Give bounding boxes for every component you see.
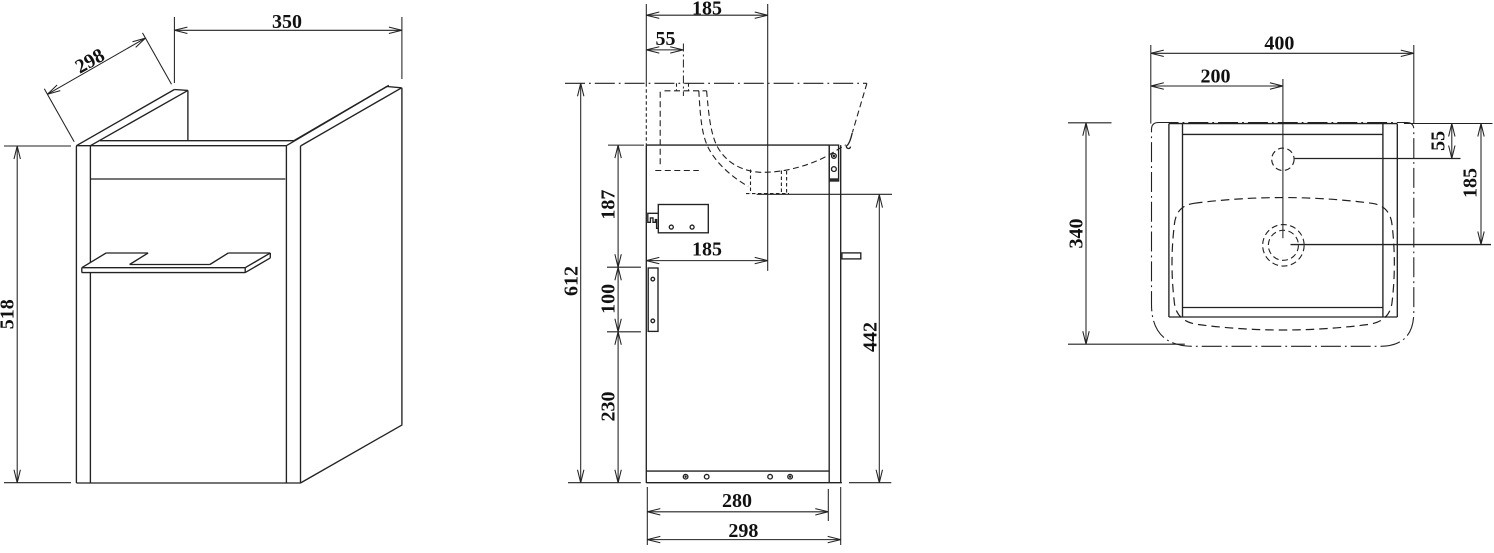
svg-text:185: 185 xyxy=(692,239,722,261)
svg-text:185: 185 xyxy=(692,0,722,20)
svg-text:400: 400 xyxy=(1264,33,1294,55)
svg-text:55: 55 xyxy=(656,28,676,50)
svg-text:518: 518 xyxy=(0,299,19,329)
svg-text:298: 298 xyxy=(72,44,109,78)
svg-text:442: 442 xyxy=(860,322,882,352)
svg-text:187: 187 xyxy=(598,190,620,220)
svg-text:230: 230 xyxy=(598,392,620,422)
svg-text:350: 350 xyxy=(272,11,302,33)
svg-text:55: 55 xyxy=(1428,131,1450,151)
svg-text:100: 100 xyxy=(598,284,620,314)
svg-text:298: 298 xyxy=(728,520,758,542)
svg-text:280: 280 xyxy=(722,490,752,512)
svg-text:200: 200 xyxy=(1201,66,1231,88)
svg-text:340: 340 xyxy=(1066,219,1088,249)
svg-text:612: 612 xyxy=(560,266,582,296)
svg-text:185: 185 xyxy=(1459,168,1481,198)
